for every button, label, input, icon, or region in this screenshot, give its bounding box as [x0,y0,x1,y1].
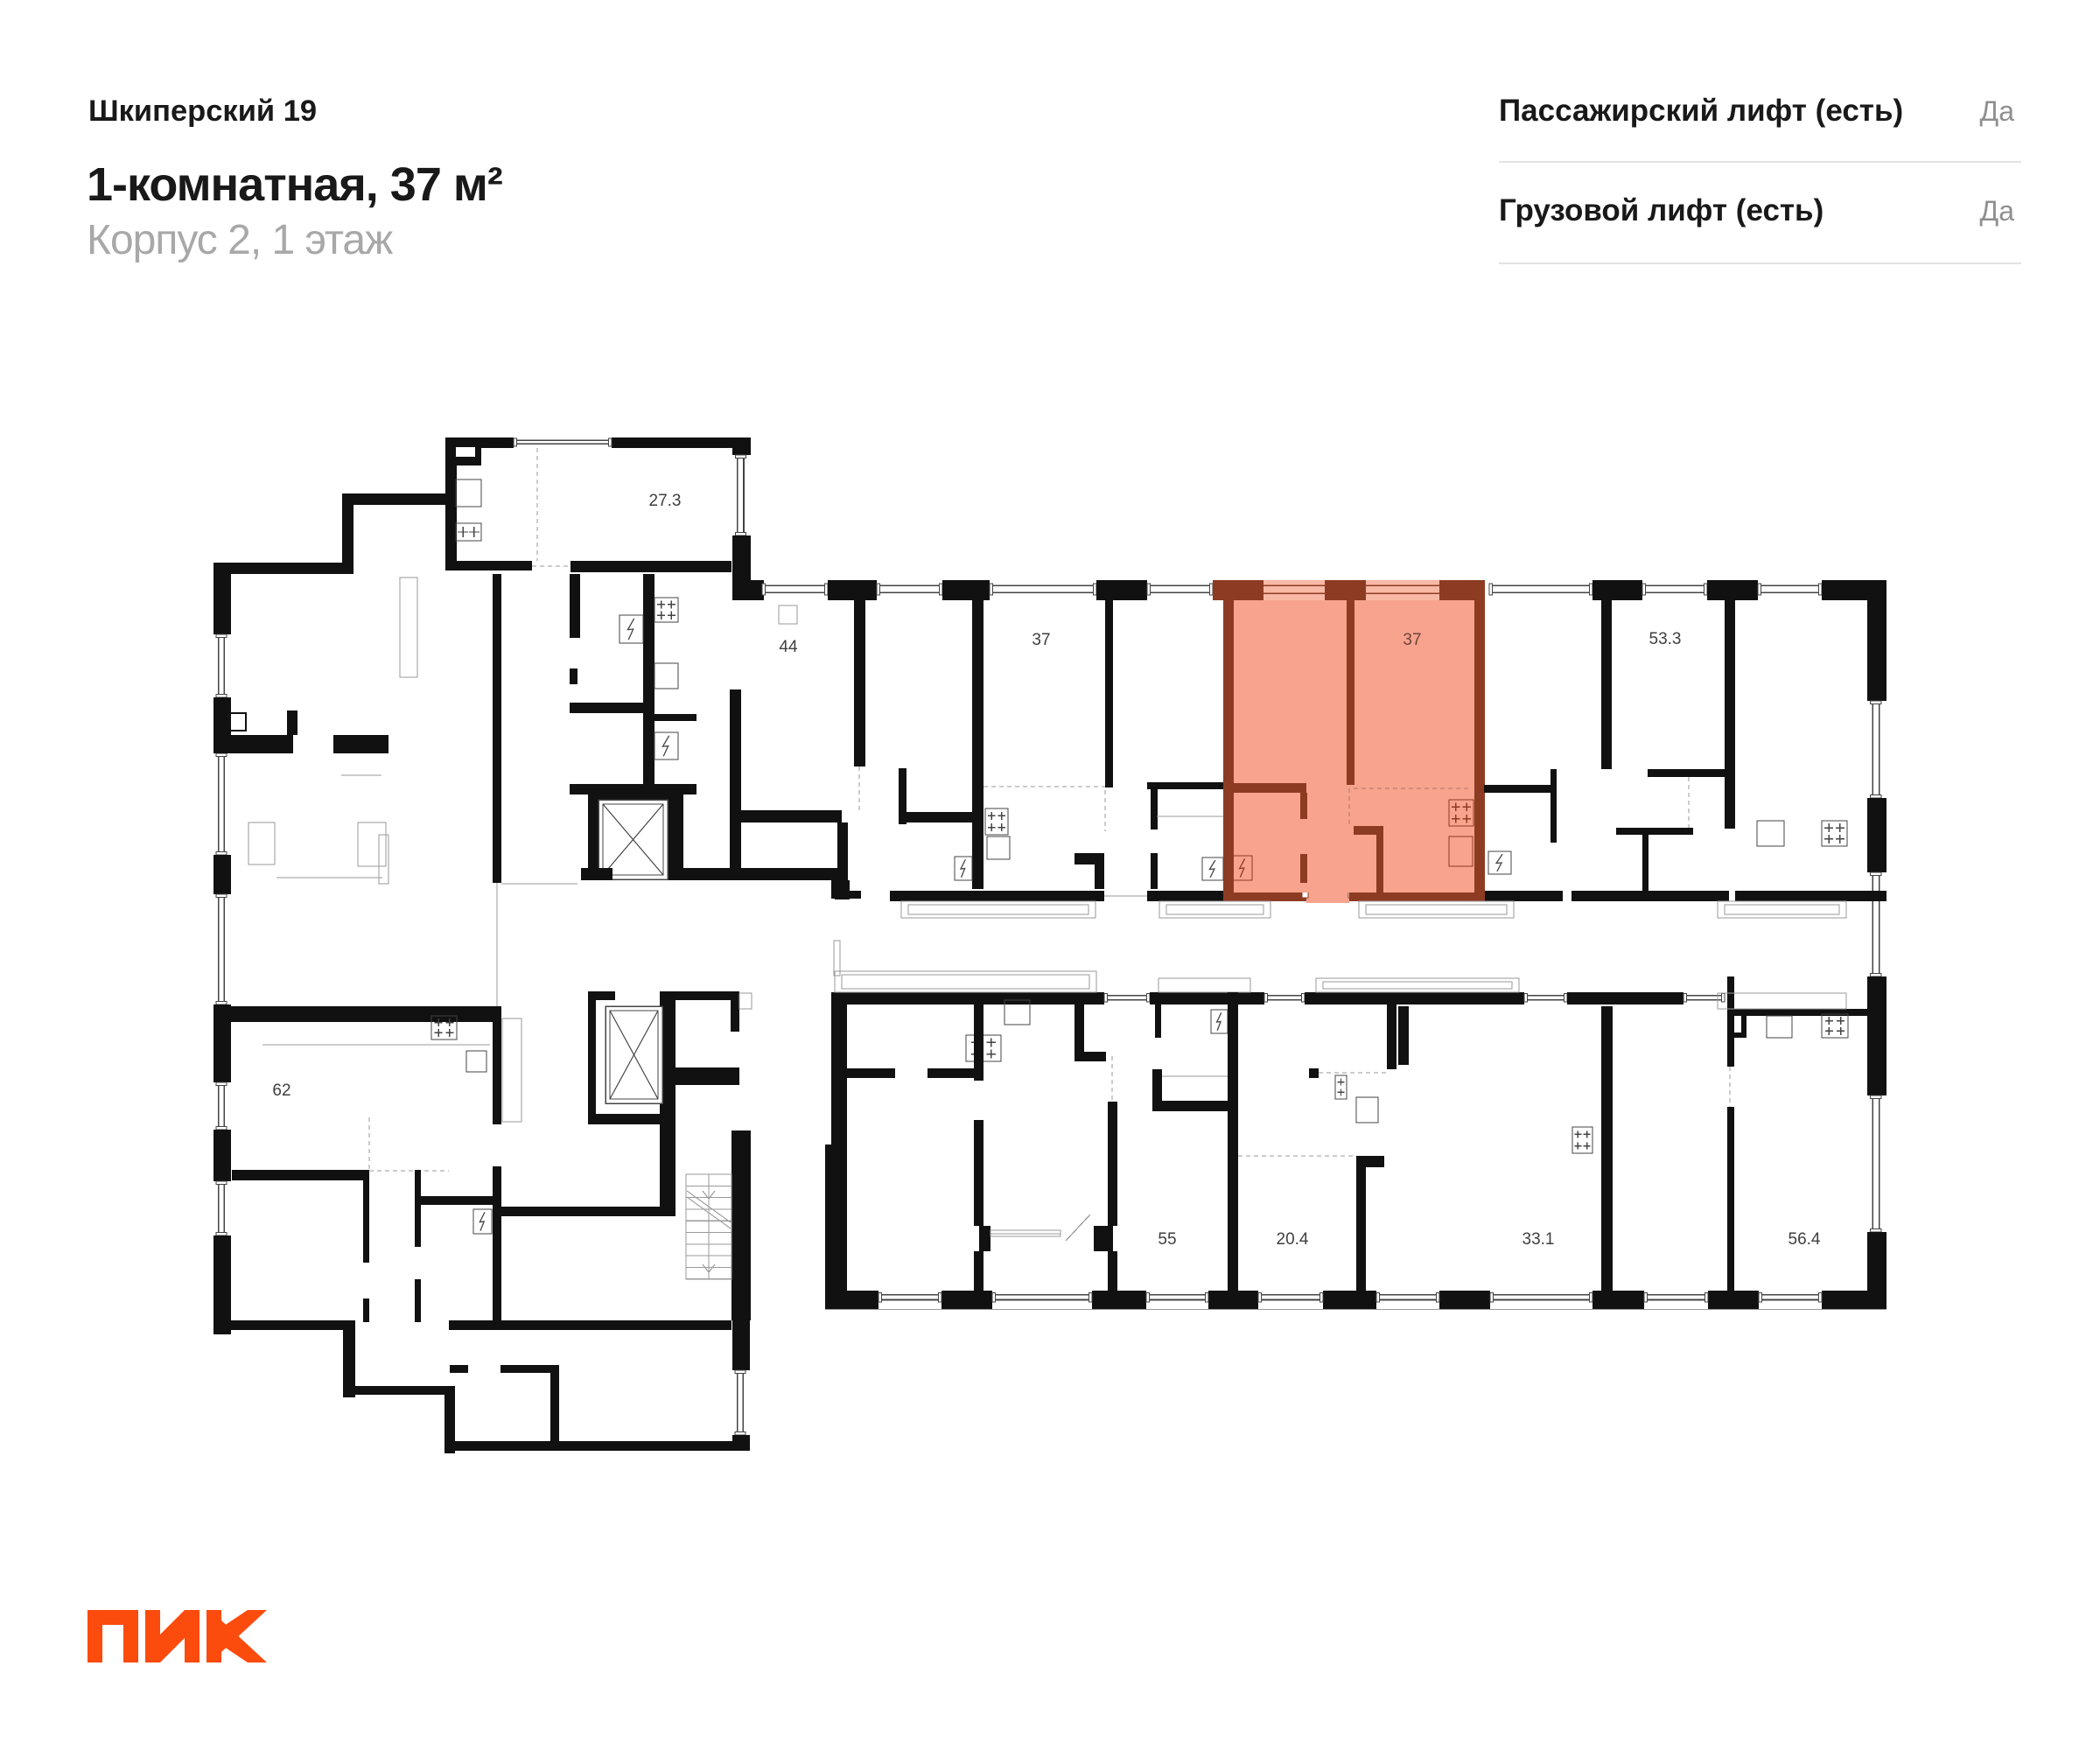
svg-text:Корпус 2, 1 этаж: Корпус 2, 1 этаж [87,217,393,263]
svg-text:53.3: 53.3 [1649,630,1682,648]
svg-text:62: 62 [272,1081,290,1100]
svg-text:37: 37 [1032,631,1050,649]
svg-text:Да: Да [1980,195,2015,227]
svg-text:Да: Да [1980,95,2015,127]
svg-text:44: 44 [779,638,798,656]
svg-text:56.4: 56.4 [1788,1230,1821,1249]
svg-text:Шкиперский 19: Шкиперский 19 [88,94,317,128]
svg-text:20.4: 20.4 [1277,1230,1309,1249]
svg-text:27.3: 27.3 [649,492,682,510]
svg-text:33.1: 33.1 [1522,1230,1555,1249]
svg-text:1-комнатная, 37 м²: 1-комнатная, 37 м² [87,158,502,211]
svg-text:37: 37 [1403,631,1421,649]
svg-text:55: 55 [1158,1230,1176,1249]
svg-text:Пассажирский лифт (есть): Пассажирский лифт (есть) [1499,94,1903,128]
svg-text:Грузовой лифт (есть): Грузовой лифт (есть) [1499,193,1823,227]
